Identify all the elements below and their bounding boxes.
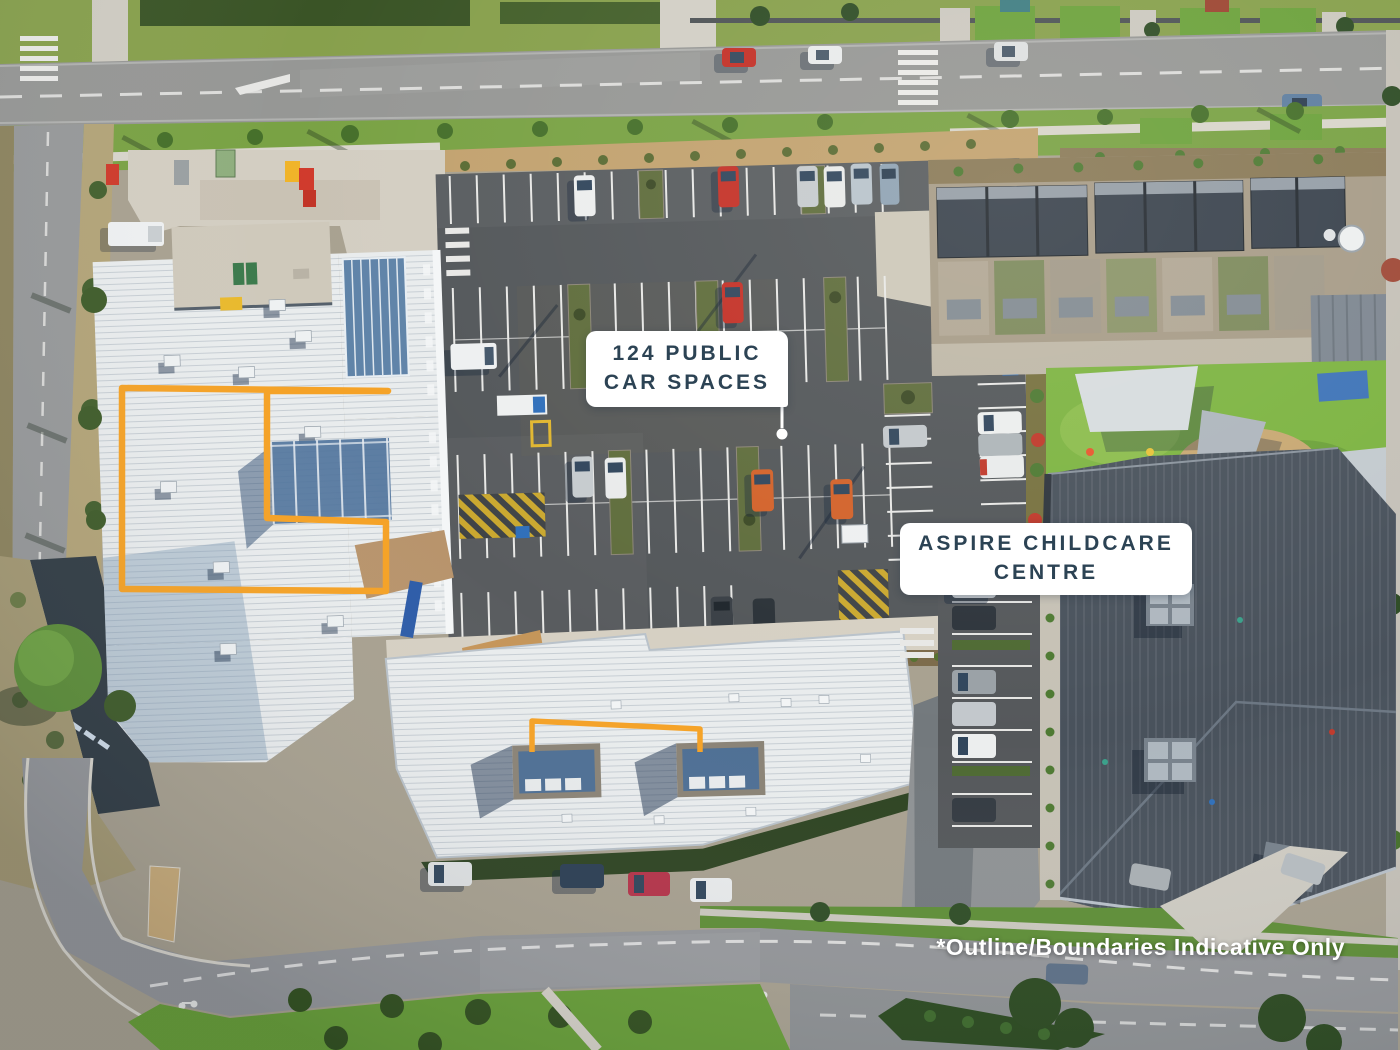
aerial-property-photo: 124 PUBLIC CAR SPACES ASPIRE CHILDCARE C… [0,0,1400,1050]
car-spaces-label-line1: 124 PUBLIC [586,340,788,369]
car-spaces-label: 124 PUBLIC CAR SPACES [586,331,788,407]
childcare-label: ASPIRE CHILDCARE CENTRE [900,523,1192,595]
aerial-photo-scene [0,0,1400,1050]
childcare-label-line2: CENTRE [900,559,1192,588]
childcare-label-line1: ASPIRE CHILDCARE [900,530,1192,559]
boundary-disclaimer-text: *Outline/Boundaries Indicative Only [936,934,1345,961]
photo-vignette [0,0,1400,1050]
car-spaces-label-line2: CAR SPACES [586,369,788,398]
